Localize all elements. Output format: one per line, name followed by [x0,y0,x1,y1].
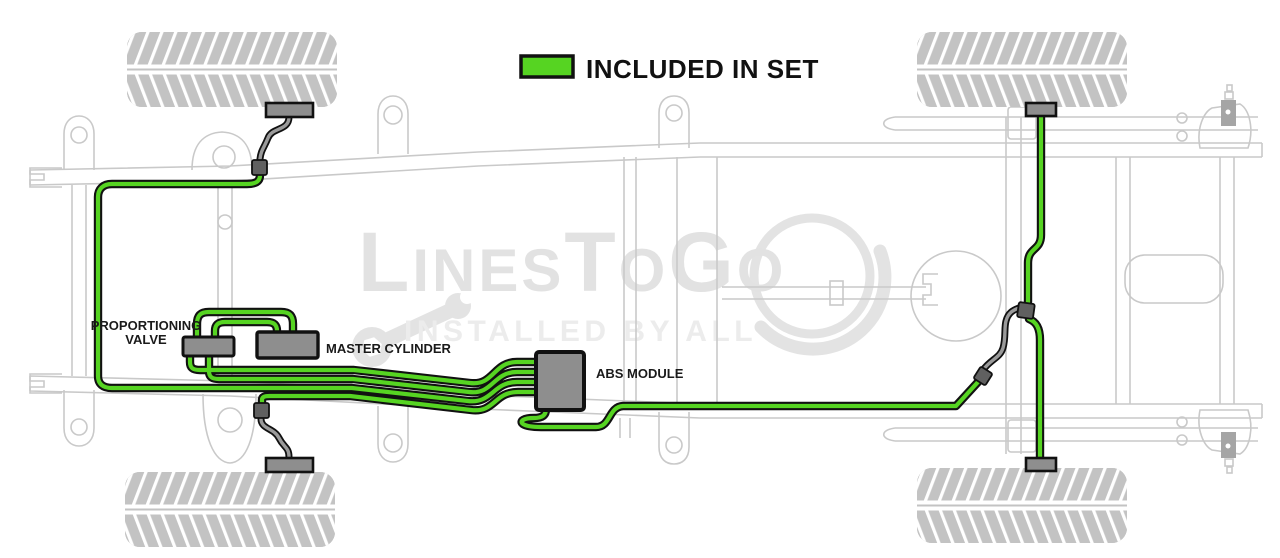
front-right-connector [254,403,269,418]
abs-module-label: ABS MODULE [596,366,684,381]
abs-module-box [536,352,584,410]
front-knuckle-top [192,132,252,170]
front-frame-horns [30,168,62,393]
proportioning-valve-label-line1: PROPORTIONING [91,318,202,333]
master-cylinder-box [257,332,318,358]
front-left-connector [252,160,267,175]
tire-rear-left [917,32,1127,107]
brake-line-diagram: LINESTOGO INSTALLED BY ALL [0,0,1280,558]
tire-front-left [127,32,337,107]
front-knuckle-bottom [203,394,256,463]
legend-swatch [521,56,573,77]
rear-axle-junction [1017,302,1035,319]
legend: INCLUDED IN SET [521,54,819,84]
tire-rear-right [917,468,1127,543]
watermark-brand-text: LINESTOGO [358,215,786,309]
rear-differential [911,251,1001,341]
wheel-fitting-rear-left [1026,103,1056,116]
wheel-fitting-front-right [266,458,313,472]
diagram-canvas: LINESTOGO INSTALLED BY ALL [0,0,1280,558]
proportioning-valve-label-line2: VALVE [125,332,167,347]
wheel-fitting-front-left [266,103,313,117]
spare-tire [1125,255,1223,303]
wheel-fitting-rear-right [1026,458,1056,471]
legend-label: INCLUDED IN SET [586,54,819,84]
proportioning-valve-box [183,337,234,356]
tire-front-right [125,472,335,547]
master-cylinder-label: MASTER CYLINDER [326,341,452,356]
watermark-tagline: INSTALLED BY ALL [404,315,757,348]
